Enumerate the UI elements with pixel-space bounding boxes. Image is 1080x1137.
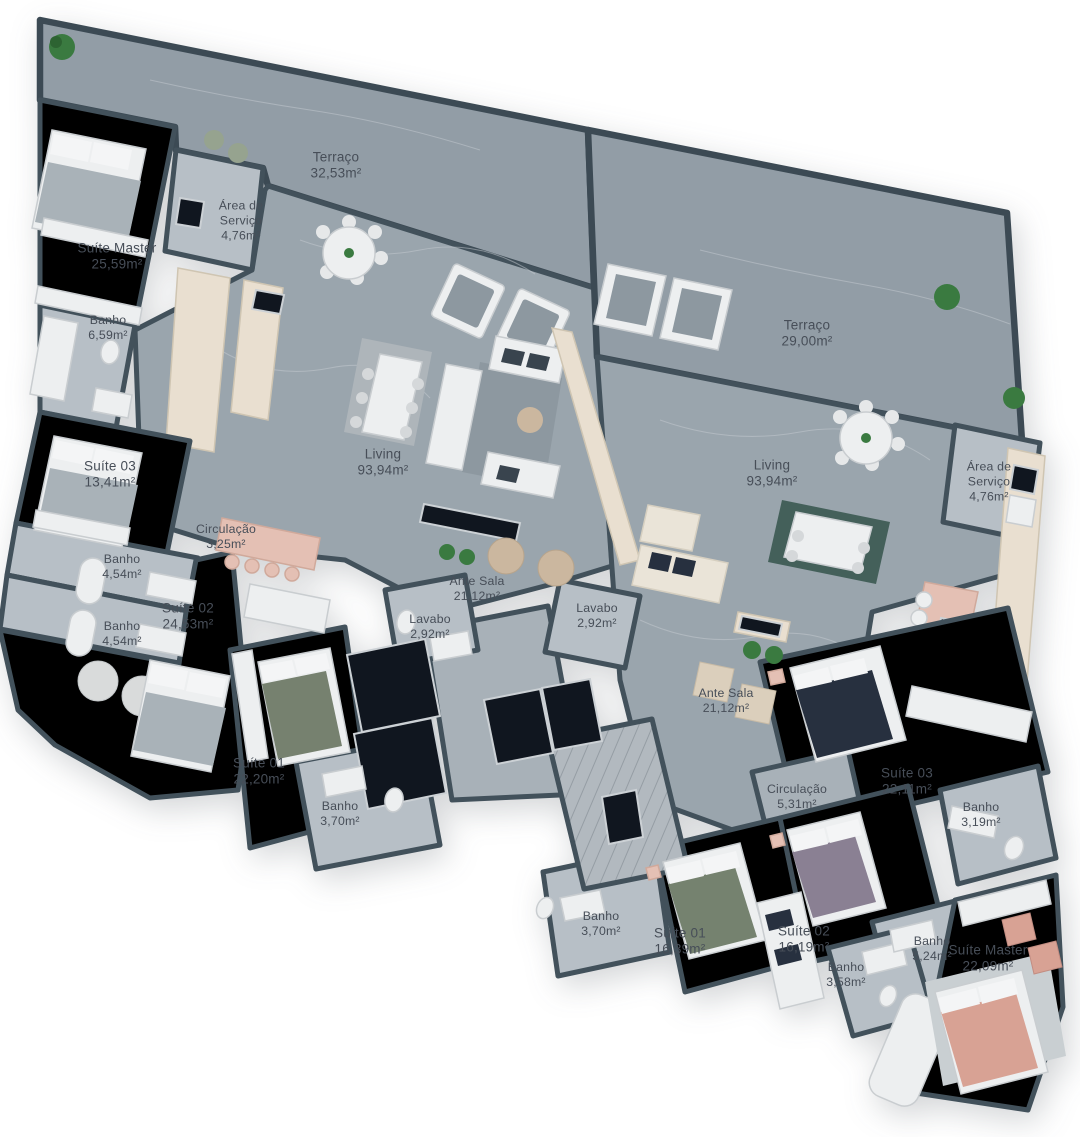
room-label-area-servico-apt1: Área de Serviço4,76m² bbox=[208, 199, 274, 244]
room-label-terraco-apt1: Terraço32,53m² bbox=[311, 150, 362, 183]
room-label-banho-370-apt1: Banho3,70m² bbox=[320, 799, 359, 829]
room-label-suite-master-apt2: Suíte Master22,09m² bbox=[949, 943, 1028, 976]
room-label-banho-454-b: Banho4,54m² bbox=[102, 619, 141, 649]
room-labels: Suíte Master25,59m² Banho6,59m² Suíte 03… bbox=[0, 0, 1080, 1137]
floor-plan-stage: Suíte Master25,59m² Banho6,59m² Suíte 03… bbox=[0, 0, 1080, 1137]
room-label-banho-358-apt2: Banho3,58m² bbox=[826, 960, 865, 990]
room-label-suite-master-apt1: Suíte Master25,59m² bbox=[78, 241, 157, 274]
room-label-living-apt1: Living93,94m² bbox=[358, 447, 409, 480]
room-label-suite-02-apt2: Suíte 0216,19m² bbox=[778, 924, 830, 957]
room-label-suite-03-apt1: Suíte 0313,41m² bbox=[84, 459, 136, 492]
room-label-banho-370-apt2: Banho3,70m² bbox=[581, 909, 620, 939]
room-label-suite-03-apt2: Suíte 0322,11m² bbox=[881, 766, 933, 799]
room-label-lavabo-apt1: Lavabo2,92m² bbox=[409, 612, 451, 642]
room-label-suite-01-apt2: Suíte 0116,39m² bbox=[654, 926, 706, 959]
room-label-lavabo-apt2: Lavabo2,92m² bbox=[576, 601, 618, 631]
room-label-banho-524-apt2: Banho5,24m² bbox=[912, 934, 951, 964]
room-label-banho-319-apt2: Banho3,19m² bbox=[961, 800, 1000, 830]
room-label-area-servico-apt2: Área de Serviço4,76m² bbox=[956, 460, 1022, 505]
room-label-circulacao-apt1: Circulação3,25m² bbox=[196, 522, 256, 552]
room-label-ante-sala-apt2: Ante Sala21,12m² bbox=[698, 686, 753, 716]
room-label-terraco-apt2: Terraço29,00m² bbox=[782, 318, 833, 351]
room-label-banho-454-a: Banho4,54m² bbox=[102, 552, 141, 582]
room-label-banho-master-apt1: Banho6,59m² bbox=[88, 313, 127, 343]
room-label-circulacao-apt2: Circulação5,31m² bbox=[767, 782, 827, 812]
room-label-living-apt2: Living93,94m² bbox=[747, 458, 798, 491]
room-label-ante-sala-apt1: Ante Sala21,12m² bbox=[449, 574, 504, 604]
room-label-suite-01-apt1: Suíte 0122,20m² bbox=[233, 756, 285, 789]
room-label-suite-02-apt1: Suíte 0224,53m² bbox=[162, 601, 214, 634]
